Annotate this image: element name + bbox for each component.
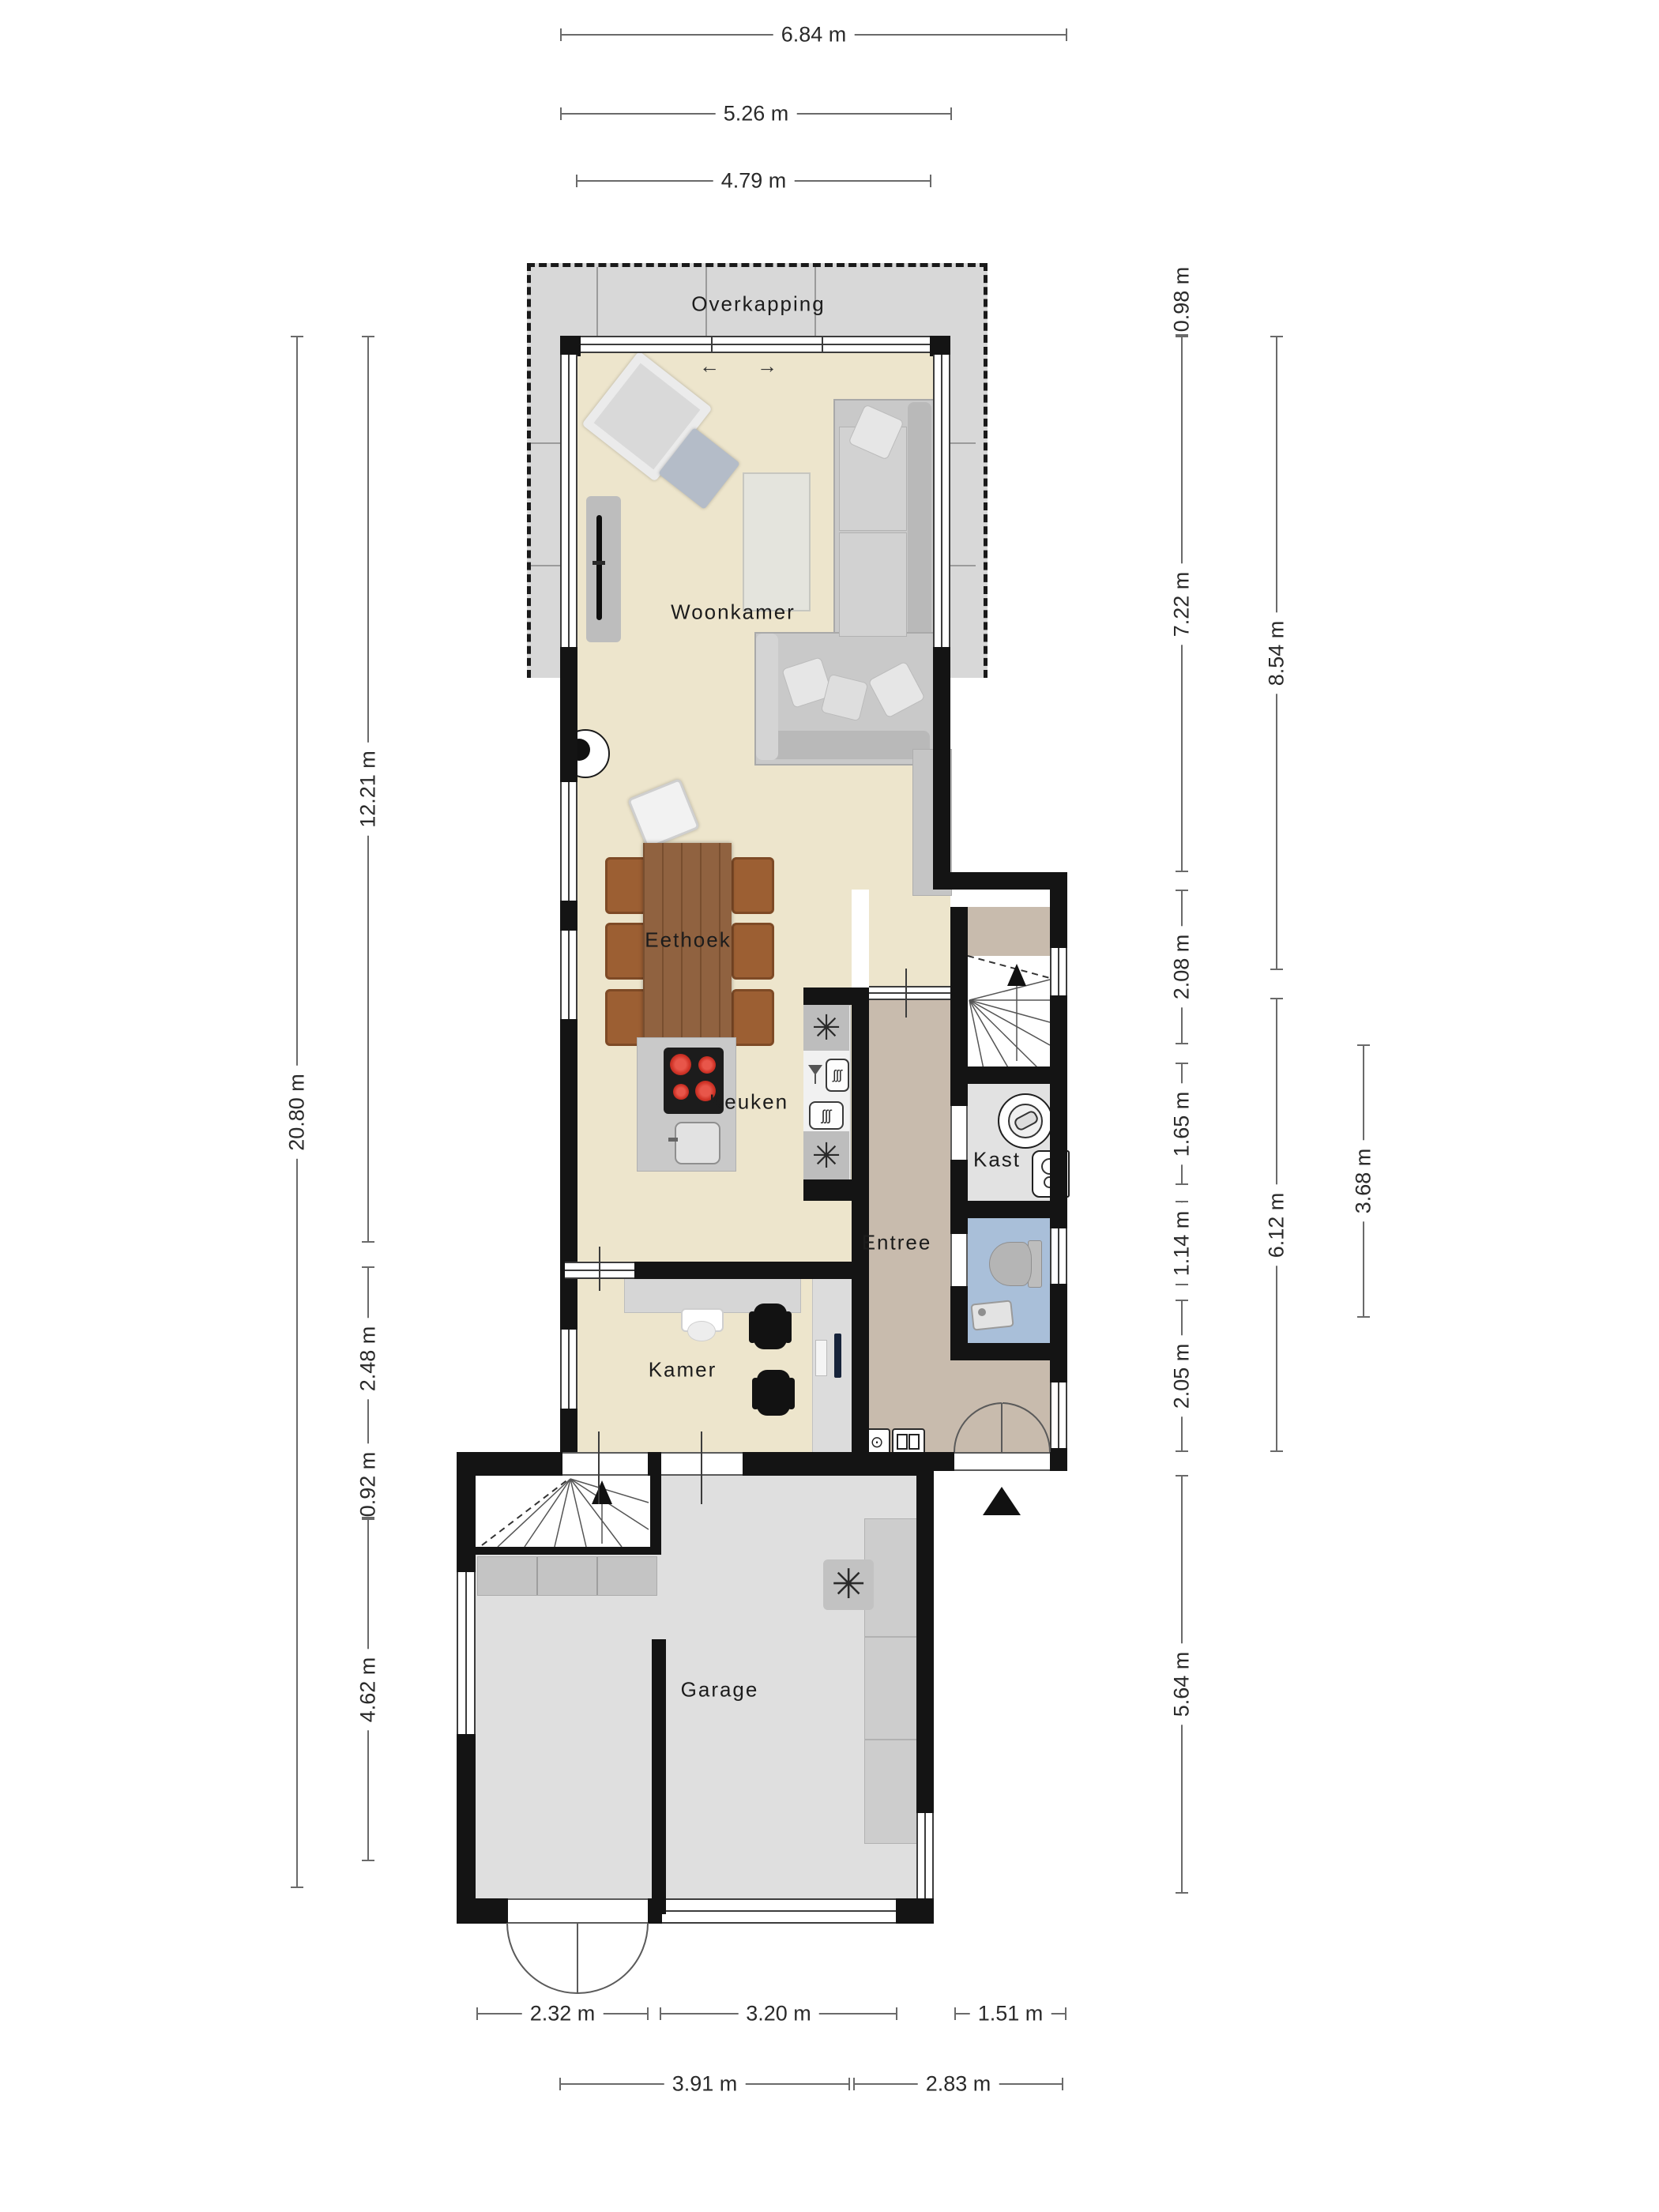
dim-label: 3.20 m xyxy=(738,2001,819,2027)
dim-line-right-10: 3.68 m xyxy=(1363,1044,1364,1318)
room-label-kast: Kast xyxy=(973,1148,1021,1172)
dim-line-left-3: 0.92 m xyxy=(367,1450,369,1518)
dim-line-bottom-5: 2.83 m xyxy=(853,2083,1063,2085)
monitor xyxy=(834,1334,841,1378)
wall-segment xyxy=(560,1279,577,1330)
dim-label: 6.84 m xyxy=(773,22,855,48)
dim-label: 0.98 m xyxy=(1169,259,1195,340)
office-chair-arm xyxy=(749,1311,756,1343)
dim-line-left-1: 12.21 m xyxy=(367,336,369,1243)
dining-chair xyxy=(732,989,774,1046)
glazing-tick xyxy=(711,337,713,352)
dim-line-top-1: 6.84 m xyxy=(560,34,1067,36)
dim-label: 4.79 m xyxy=(713,168,795,194)
dim-label: 3.68 m xyxy=(1351,1141,1377,1222)
dim-label: 0.92 m xyxy=(355,1444,382,1525)
desk-chair-seat xyxy=(687,1321,716,1341)
overkapping-post-line xyxy=(531,442,560,444)
dim-line-right-7: 5.64 m xyxy=(1181,1475,1183,1894)
dim-label: 2.48 m xyxy=(355,1318,382,1399)
door-opening xyxy=(950,1234,968,1286)
island-sink xyxy=(675,1122,720,1164)
dim-label: 6.12 m xyxy=(1264,1184,1290,1266)
wall-post xyxy=(930,336,950,356)
dim-label: 5.26 m xyxy=(716,101,797,127)
garage-fan-unit: ✳ xyxy=(823,1559,874,1610)
wall-segment xyxy=(560,647,577,782)
sofa-armrest xyxy=(756,634,778,760)
wall-segment xyxy=(634,1262,852,1279)
dim-label: 3.91 m xyxy=(664,2071,746,2097)
window xyxy=(560,931,577,1019)
dim-line-right-9: 6.12 m xyxy=(1276,998,1277,1452)
dim-label: 5.64 m xyxy=(1169,1644,1195,1725)
tv-cabinet xyxy=(586,496,621,642)
fuse-icon xyxy=(897,1434,908,1450)
dim-label: 8.54 m xyxy=(1264,612,1290,694)
dishwasher-cell: ʃʃʃ xyxy=(803,1051,849,1100)
garage-door xyxy=(662,1898,896,1924)
window xyxy=(560,782,577,901)
wall-segment xyxy=(743,1452,934,1476)
wall-segment xyxy=(950,907,968,1070)
dim-label: 1.65 m xyxy=(1169,1083,1195,1164)
office-chair xyxy=(754,1303,787,1349)
wall-segment xyxy=(950,1066,1067,1084)
wall-segment xyxy=(650,1476,661,1555)
wall-segment xyxy=(852,999,869,1201)
wall-segment xyxy=(560,901,577,931)
dim-line-bottom-2: 3.20 m xyxy=(660,2013,897,2014)
toilet-sink-tap xyxy=(978,1308,986,1316)
dishwasher-icon: ʃʃʃ xyxy=(826,1059,849,1092)
room-label-woonkamer: Woonkamer xyxy=(671,600,796,625)
dim-label: 7.22 m xyxy=(1169,563,1195,645)
window xyxy=(916,1813,934,1908)
window xyxy=(560,1330,577,1409)
dim-line-left-2: 2.48 m xyxy=(367,1266,369,1450)
oven-cell: ʃʃʃ xyxy=(803,1100,849,1131)
coil-glyph: ʃʃʃ xyxy=(822,1108,831,1124)
wall-segment xyxy=(560,1019,577,1279)
dim-line-top-3: 4.79 m xyxy=(576,180,931,182)
dining-chair xyxy=(605,857,648,914)
garage-shelves xyxy=(477,1556,657,1596)
dim-line-left-total: 20.80 m xyxy=(296,336,298,1888)
wall-segment xyxy=(950,1286,968,1343)
wall-segment xyxy=(1050,1448,1067,1471)
hall-corner-floor xyxy=(869,890,950,989)
wall-segment xyxy=(457,1734,476,1924)
room-label-kamer: Kamer xyxy=(649,1358,717,1382)
wall-segment xyxy=(476,1898,508,1924)
dim-line-right-1: 0.98 m xyxy=(1181,263,1183,336)
door-marker xyxy=(905,969,907,1018)
meter-box-fuses xyxy=(892,1428,925,1455)
tv-stand xyxy=(592,561,605,565)
door-marker xyxy=(599,1247,600,1291)
dim-label: 20.80 m xyxy=(284,1066,310,1159)
wall-segment xyxy=(648,1452,661,1476)
sofa-cushion xyxy=(839,532,907,637)
window xyxy=(1050,1382,1067,1448)
dining-chair xyxy=(732,857,774,914)
wall-segment xyxy=(457,1452,562,1476)
wall-segment xyxy=(1050,890,1067,948)
dim-line-right-4: 1.65 m xyxy=(1181,1063,1183,1185)
hob-burner xyxy=(698,1056,716,1074)
wine-glass-stem xyxy=(814,1074,816,1084)
wall-segment xyxy=(950,1201,1067,1218)
overkapping-post-line xyxy=(950,565,976,566)
dim-line-right-5: 1.14 m xyxy=(1181,1201,1183,1285)
toilet-bowl xyxy=(989,1242,1032,1286)
dim-line-bottom-4: 3.91 m xyxy=(559,2083,850,2085)
tv-screen xyxy=(596,515,602,620)
freezer-cell: ✳ xyxy=(803,1005,849,1051)
wall-segment xyxy=(950,1218,968,1234)
overkapping-post-line xyxy=(950,442,976,444)
garage-entry-door-arcs xyxy=(506,1922,649,1996)
freezer-icon: ✳ xyxy=(812,1136,841,1176)
overkapping-post-line xyxy=(531,565,560,566)
office-chair-arm xyxy=(752,1378,759,1409)
wall-segment xyxy=(933,647,950,872)
fan-icon: ✳ xyxy=(831,1561,866,1608)
window xyxy=(1050,948,1067,995)
glazing-tick xyxy=(822,337,823,352)
dim-label: 1.14 m xyxy=(1169,1202,1195,1284)
window xyxy=(1050,1228,1067,1284)
room-label-eethoek: Eethoek xyxy=(645,928,731,953)
wall-segment xyxy=(1050,995,1067,1228)
hob-burner xyxy=(673,1084,689,1100)
entree-floor xyxy=(869,1000,950,1452)
window xyxy=(560,355,577,647)
door-marker xyxy=(598,1431,600,1504)
dining-chair xyxy=(732,923,774,980)
wall-segment xyxy=(1050,1284,1067,1382)
door-opening xyxy=(950,1106,968,1160)
sofa-seat-back xyxy=(758,731,930,759)
dim-label: 12.21 m xyxy=(355,743,382,836)
coffee-table xyxy=(743,472,811,611)
door-marker xyxy=(701,1431,702,1504)
window xyxy=(457,1572,476,1734)
dim-label: 4.62 m xyxy=(355,1650,382,1731)
room-label-entree: Entree xyxy=(862,1231,932,1255)
dim-line-bottom-3: 1.51 m xyxy=(954,2013,1066,2014)
floorplan-canvas: ✳ ʃʃʃ ʃʃʃ ✳ ✳ ⊙ xyxy=(0,0,1659,2212)
room-label-garage: Garage xyxy=(681,1678,759,1702)
wall-segment xyxy=(560,1409,577,1452)
dim-label: 2.83 m xyxy=(918,2071,999,2097)
dim-line-bottom-1: 2.32 m xyxy=(476,2013,649,2014)
dim-line-right-6: 2.05 m xyxy=(1181,1300,1183,1452)
wall-segment xyxy=(916,1475,934,1813)
overkapping-post-line xyxy=(596,267,598,336)
dim-line-right-8: 8.54 m xyxy=(1276,336,1277,970)
dim-line-top-2: 5.26 m xyxy=(560,113,952,115)
coil-glyph: ʃʃʃ xyxy=(833,1067,841,1083)
entrance-triangle-icon xyxy=(983,1487,1021,1515)
office-chair-arm xyxy=(788,1378,795,1409)
dim-label: 1.51 m xyxy=(970,2001,1051,2027)
front-door-opening xyxy=(954,1452,1050,1471)
slide-arrow-left-icon: ← xyxy=(699,354,720,378)
office-chair-arm xyxy=(784,1311,792,1343)
wall-segment xyxy=(457,1476,476,1572)
wall-segment xyxy=(950,1084,968,1106)
oven-icon: ʃʃʃ xyxy=(809,1101,844,1130)
interior-glass-partition xyxy=(869,986,950,1000)
slide-arrow-right-icon: → xyxy=(757,354,777,378)
dim-label: 2.32 m xyxy=(522,2001,604,2027)
room-label-keuken: Keuken xyxy=(709,1090,788,1115)
wall-segment xyxy=(896,1898,934,1924)
front-door-arcs xyxy=(953,1397,1051,1454)
door-opening xyxy=(562,1452,648,1476)
toilet-sink xyxy=(970,1300,1014,1330)
dining-chair xyxy=(605,923,648,980)
dim-line-right-3: 2.08 m xyxy=(1181,890,1183,1044)
freezer-icon: ✳ xyxy=(812,1008,841,1048)
keyboard xyxy=(815,1340,827,1376)
dim-label: 2.05 m xyxy=(1169,1335,1195,1416)
lamp-icon: ⊙ xyxy=(871,1432,884,1452)
garage-divider-wall xyxy=(652,1639,666,1914)
freezer-cell-2: ✳ xyxy=(803,1131,849,1181)
window xyxy=(560,336,950,353)
dim-label: 2.08 m xyxy=(1169,927,1195,1008)
room-label-overkapping: Overkapping xyxy=(691,292,825,317)
dim-line-left-4: 4.62 m xyxy=(367,1518,369,1861)
dim-line-right-2: 7.22 m xyxy=(1181,336,1183,872)
wall-post xyxy=(560,336,581,356)
office-chair xyxy=(757,1370,790,1416)
wall-segment xyxy=(950,1160,968,1201)
sink-faucet xyxy=(668,1138,678,1142)
garage-entry-doors xyxy=(508,1898,648,1924)
garage-stairs xyxy=(476,1476,650,1548)
window xyxy=(933,355,950,647)
fuse-icon xyxy=(908,1434,920,1450)
wall-segment xyxy=(476,1547,661,1555)
hob-burner xyxy=(670,1054,691,1075)
wall-segment xyxy=(933,872,1067,890)
wall-segment xyxy=(803,1179,869,1201)
entree-stairs xyxy=(968,907,1050,1070)
